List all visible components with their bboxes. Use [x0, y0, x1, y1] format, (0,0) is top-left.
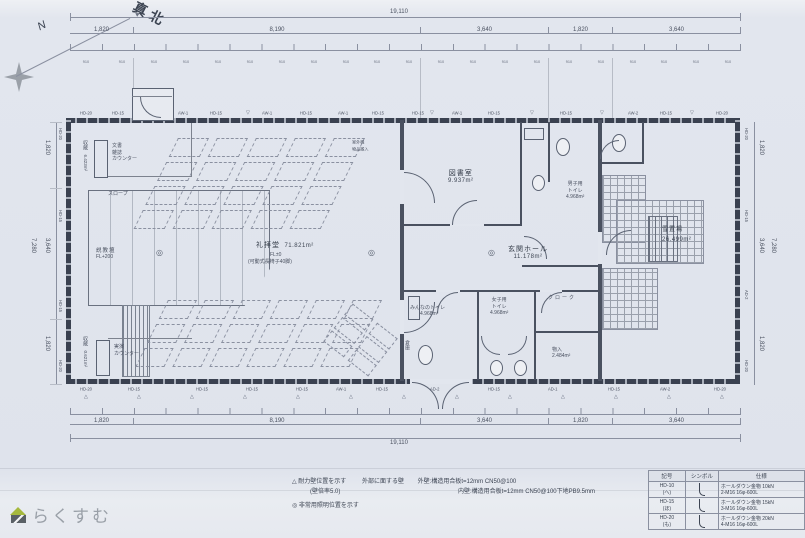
dim-module-label: 910 [555, 59, 582, 63]
shear-wall-mark: △ [720, 394, 724, 400]
dim-line-total-bottom [70, 438, 741, 439]
bench [251, 210, 291, 229]
wall-code: AW-2 [660, 387, 670, 392]
shear-wall-mark: △ [296, 394, 300, 400]
bench [286, 138, 326, 157]
wall-code: AW-1 [262, 111, 272, 116]
dim-module-label: 910 [300, 59, 327, 63]
bench [173, 210, 213, 229]
legend-bolt: 3-M16 16φ-600L [721, 506, 802, 512]
legend-header-spec: 仕様 [718, 471, 804, 482]
bench [196, 162, 236, 181]
room-ramp-label: スロープ [108, 190, 128, 197]
room-demo-counter-label: 実演 カウンター [114, 344, 139, 358]
legend-bolt: 4-M16 16φ-600L [721, 522, 802, 528]
rakusumu-logo: らくすむ [10, 502, 112, 527]
wall-menstoilet-partition [548, 122, 550, 182]
dim-seg: 3,640 [613, 418, 741, 424]
dim-seg: 8,190 [134, 27, 421, 33]
legend-kana: (ほ) [651, 505, 683, 512]
room-everyones-toilet-label: みんなのトイレ 4.968m² [410, 304, 445, 317]
shear-wall-mark: ▽ [690, 110, 694, 116]
wall-left [66, 118, 71, 384]
dim-seg: 1,820 [549, 27, 613, 33]
wall-code: HD-15 [372, 111, 384, 116]
room-doc-counter-label: 文書 雑誌 カウンター [112, 143, 137, 163]
wall-code: HD-15 [488, 387, 500, 392]
bench [147, 324, 185, 343]
emergency-light-icon: ◎ [156, 248, 163, 257]
shear-wall-mark: ▽ [600, 110, 604, 116]
wall-code: HD-15 [608, 387, 620, 392]
door-arc [452, 200, 477, 225]
note-wall-ratio: (壁倍率5.0) [310, 489, 340, 495]
wall-code: AW-1 [178, 111, 188, 116]
bench [172, 348, 210, 367]
dim-seg: 3,640 [613, 27, 741, 33]
dim-sseg-right: 3,640 [758, 238, 764, 253]
archive-cabinet-bottom [96, 340, 110, 376]
shear-wall-mark: △ [455, 394, 459, 400]
shear-wall-marks-bottom: △ △△△△△△△△△△△△ [84, 394, 724, 400]
compass-star-icon [4, 62, 34, 92]
bench [307, 300, 345, 319]
wall-library-east [520, 122, 522, 225]
dim-line-left [56, 122, 57, 385]
dim-total-top: 19,110 [390, 9, 408, 15]
north-n-label: N [36, 19, 49, 33]
wall-toilet-row-north [404, 290, 600, 292]
wall-toilet-divider-2 [534, 292, 536, 380]
legend-spec: ホールダウン金物 15kN [721, 499, 802, 506]
floor-plan-sheet: N 真北 19,110 1,8208,1903,6401,8203,640 91… [0, 0, 805, 538]
legend-row: HD-20 (も) ホールダウン金物 20kN 4-M16 16φ-600L [649, 514, 805, 530]
room-archive-bottom-label: 収蔵 0.621m² [76, 336, 94, 367]
toilet-fixture [556, 138, 570, 156]
legend-bolt: 2-M16 16φ-600L [721, 490, 802, 496]
bench [246, 348, 284, 367]
bench [212, 210, 252, 229]
shear-wall-mark: △ [137, 394, 141, 400]
shear-wall-mark: ▽ [246, 110, 250, 116]
emergency-light-icon: ◎ [368, 248, 375, 257]
bench [290, 210, 330, 229]
toilet-fixture [418, 345, 433, 365]
dim-sseg-left: 3,640 [44, 238, 50, 253]
dim-seg: 8,190 [134, 418, 421, 424]
wall-code: HD-15 [196, 387, 208, 392]
wall-menstoilet-south [522, 265, 600, 267]
legend-kana: (へ) [651, 489, 683, 496]
room-mens-toilet-label: 男子用 トイレ 4.968m² [566, 180, 584, 200]
room-cloak-label: クローク [548, 294, 576, 301]
wall-code: HD-15 [488, 111, 500, 116]
dim-sseg-right: 1,820 [758, 140, 764, 155]
room-warehouse-label: 倉庫 [404, 340, 411, 350]
shear-wall-mark: ▽ [430, 110, 434, 116]
dim-side-total-right: 7,280 [770, 238, 776, 253]
bench [145, 186, 185, 205]
dim-sseg-left: 1,820 [44, 140, 50, 155]
wall-code: AW-1 [336, 387, 346, 392]
wall-code: HD-20 [80, 387, 92, 392]
dim-module-label: 910 [491, 59, 518, 63]
dim-module-ticks-bottom [70, 408, 741, 415]
dim-segments-bottom: 1,8208,1903,6401,8203,640 [70, 418, 741, 425]
shear-wall-mark: △ [84, 394, 88, 400]
door-arc [600, 140, 619, 159]
dim-module-label: 910 [204, 59, 231, 63]
bench [262, 186, 302, 205]
dim-module-label: 910 [715, 59, 742, 63]
bench [274, 162, 314, 181]
wall-code: HD-20 [58, 360, 63, 372]
hold-down-hook-icon [699, 483, 705, 496]
legend-row: HD-10 (へ) ホールダウン金物 10kN 2-M16 16φ-600L [649, 482, 805, 498]
note-int-spec: 内壁:構造用合板t=12mm CN50@100下地PB9.5mm [458, 489, 595, 495]
note-em-light: ◎ 非常用照明位置を示す [292, 503, 359, 509]
archive-cabinet-top [94, 140, 108, 178]
bench [209, 348, 247, 367]
legend-header-code: 記号 [649, 471, 686, 482]
room-entrance-hall-label: 玄関ホール 11.178m² [508, 244, 548, 260]
dim-seg: 1,820 [70, 418, 134, 424]
note-shear-wall: △ 耐力壁位置を示す [292, 479, 346, 485]
dim-seg: 1,820 [549, 418, 613, 424]
dim-module-label: 910 [141, 59, 168, 63]
dim-seg: 3,640 [421, 418, 549, 424]
door-arc [404, 172, 435, 203]
wall-code: HD-15 [296, 387, 308, 392]
dim-module-label: 910 [651, 59, 678, 63]
dim-sseg-right: 1,820 [758, 336, 764, 351]
wall-code: HD-15 [210, 111, 222, 116]
room-archive-top-label: 収蔵 6.423m² [76, 140, 94, 171]
dim-seg: 1,820 [70, 27, 134, 33]
wall-code: HD-15 [744, 210, 749, 222]
wall-code: HD-15 [58, 300, 63, 312]
dim-module-label: 910 [173, 59, 200, 63]
dim-module-label: 910 [587, 59, 614, 63]
shear-wall-mark: △ [190, 394, 194, 400]
wall-code: HD-20 [80, 111, 92, 116]
wall-code: HD-15 [128, 387, 140, 392]
dim-line-right [754, 122, 755, 385]
bench [221, 324, 259, 343]
house-logo-icon [10, 507, 27, 523]
dim-line-total [70, 17, 741, 18]
bench [169, 138, 209, 157]
bench [258, 324, 296, 343]
room-area: 71.821m² [284, 243, 313, 249]
bench [247, 138, 287, 157]
wall-code: AD-1 [548, 387, 557, 392]
dim-module-label: 910 [332, 59, 359, 63]
room-pulpit-label: 説教壇 FL+200 [96, 246, 116, 260]
wall-code: AD-2 [744, 290, 749, 299]
dim-seg: 3,640 [421, 27, 549, 33]
toilet-fixture [514, 360, 527, 376]
dim-module-label: 910 [428, 59, 455, 63]
dim-module-label: 910 [683, 59, 710, 63]
wall-code: HD-15 [112, 111, 124, 116]
carry-in-label: 物品搬入 [352, 147, 369, 153]
room-storage-label: 物入 2.484m² [552, 346, 570, 359]
room-note: (可動式長椅子40脚) [248, 258, 314, 265]
bench [223, 186, 263, 205]
room-snowyard-label: 雪置場 26.499m² [662, 224, 691, 243]
wall-code: HD-15 [660, 111, 672, 116]
outdoor-unit-label: 室外機 [352, 140, 364, 146]
wall-code: HD-20 [58, 128, 63, 140]
dim-module-label: 910 [619, 59, 646, 63]
snowyard-deck-grid [602, 268, 658, 330]
dim-module-label: 910 [523, 59, 550, 63]
bench [283, 348, 321, 367]
door-arc [508, 336, 527, 355]
wall-code: HD-15 [560, 111, 572, 116]
emergency-light-icon: ◎ [488, 248, 495, 257]
dim-side-total-left: 7,280 [30, 238, 36, 253]
legend-header-symbol: シンボル [685, 471, 718, 482]
room-name: 礼拝堂 [256, 242, 280, 249]
hold-down-hook-icon [699, 499, 705, 512]
wall-code: HD-20 [744, 360, 749, 372]
toilet-fixture [532, 175, 545, 191]
bench [184, 324, 222, 343]
wall-right [735, 118, 740, 384]
wall-code: AW-2 [628, 111, 638, 116]
shear-wall-mark: △ [561, 394, 565, 400]
bench [233, 300, 271, 319]
washbasin [524, 128, 544, 140]
legend-spec: ホールダウン金物 20kN [721, 515, 802, 522]
room-library-label: 図書室 9.937m² [448, 168, 474, 184]
dim-module-labels-top: 910 910910910910910910910910910910910910… [70, 50, 741, 68]
wall-code: HD-15 [300, 111, 312, 116]
bench [235, 162, 275, 181]
scan-line [0, 468, 805, 469]
hold-down-hook-icon [699, 515, 705, 528]
bench [208, 138, 248, 157]
note-ext-facing: 外部に面する壁 [362, 479, 404, 485]
toilet-fixture [490, 360, 503, 376]
dim-segments-top: 1,8208,1903,6401,8203,640 [70, 27, 741, 34]
dim-module-label: 910 [268, 59, 295, 63]
wall-toilet-divider-1 [477, 292, 479, 380]
wall-cloak-storage [536, 331, 600, 333]
logo-text: らくすむ [32, 502, 112, 527]
bench [301, 186, 341, 205]
bench [313, 162, 353, 181]
dim-module-label: 910 [460, 59, 487, 63]
wall-code: HD-15 [376, 387, 388, 392]
drawing-notes: △ 耐力壁位置を示す 外部に面する壁 外壁:構造用合板t=12mm CN50@1… [292, 477, 595, 512]
dim-module-label: 910 [72, 59, 99, 63]
bench-rows-north [134, 138, 365, 229]
wall-code: HD-15 [412, 111, 424, 116]
wall-code: HD-20 [714, 387, 726, 392]
hold-down-legend-table: 記号 シンボル 仕様 HD-10 (へ) ホールダウン金物 10kN 2-M16… [648, 470, 805, 530]
shear-wall-mark: △ [402, 394, 406, 400]
wall-code: AD-2 [430, 387, 439, 392]
shear-wall-mark: △ [349, 394, 353, 400]
room-hall-label: 礼拝堂 71.821m² FL±0 (可動式長椅子40脚) [256, 234, 314, 265]
wall-small-toilet-east [642, 122, 644, 164]
dim-module-label: 910 [109, 59, 136, 63]
legend-kana: (も) [651, 521, 683, 528]
shear-wall-mark: △ [667, 394, 671, 400]
bench [270, 300, 308, 319]
bench [184, 186, 224, 205]
shear-wall-mark: △ [614, 394, 618, 400]
shear-wall-mark: △ [508, 394, 512, 400]
note-ext-spec: 外壁:構造用合板t=12mm CN50@100 [418, 479, 517, 485]
dim-module-label: 910 [396, 59, 423, 63]
legend-spec: ホールダウン金物 10kN [721, 483, 802, 490]
wall-code: AW-1 [452, 111, 462, 116]
room-womens-toilet-label: 女子用 トイレ 4.968m² [490, 296, 508, 316]
wall-code: HD-15 [246, 387, 258, 392]
shear-wall-mark: △ [243, 394, 247, 400]
bench [196, 300, 234, 319]
wall-code: HD-15 [58, 210, 63, 222]
wall-code: HD-20 [744, 128, 749, 140]
dim-module-label: 910 [236, 59, 263, 63]
wall-small-toilet-south [598, 162, 644, 164]
door-arc [481, 336, 500, 355]
dim-total-bottom: 19,110 [390, 440, 408, 446]
dim-module-label: 910 [364, 59, 391, 63]
wall-code: AW-1 [338, 111, 348, 116]
wall-code: HD-20 [716, 111, 728, 116]
legend-row: HD-15 (ほ) ホールダウン金物 15kN 3-M16 16φ-600L [649, 498, 805, 514]
dim-sseg-left: 1,820 [44, 336, 50, 351]
shear-wall-mark: ▽ [530, 110, 534, 116]
